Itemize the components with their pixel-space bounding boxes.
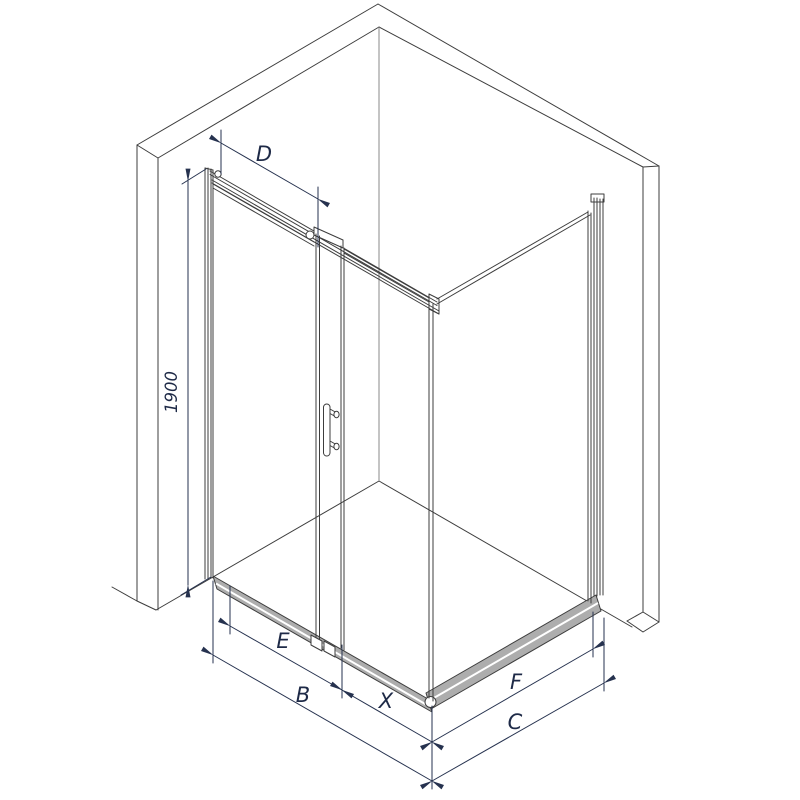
- dim-label-d: D: [256, 142, 272, 166]
- dim-label-f: F: [510, 670, 523, 694]
- tray-corner-foot: [425, 697, 436, 708]
- tray-front-rail-highlight: [216, 584, 430, 707]
- dimension-annotations: D 1900 E B X F C: [162, 130, 604, 789]
- door-handle: [324, 404, 340, 456]
- dim-label-x: X: [378, 689, 394, 713]
- roller-left: [215, 171, 221, 177]
- dim-line-b: [213, 655, 432, 781]
- shower-enclosure-diagram-page: D 1900 E B X F C: [0, 0, 800, 800]
- sliding-door-assembly: [205, 168, 439, 657]
- handle-bar: [324, 404, 331, 456]
- dim-label-b: B: [296, 683, 310, 707]
- shower-enclosure-isometric-drawing: D 1900 E B X F C: [0, 0, 800, 800]
- corner-walls-outline: [112, 4, 659, 632]
- dim-label-c: C: [508, 710, 523, 734]
- shower-tray: [213, 576, 601, 712]
- dim-label-height-1900: 1900: [162, 371, 181, 413]
- dim-label-e: E: [276, 629, 290, 653]
